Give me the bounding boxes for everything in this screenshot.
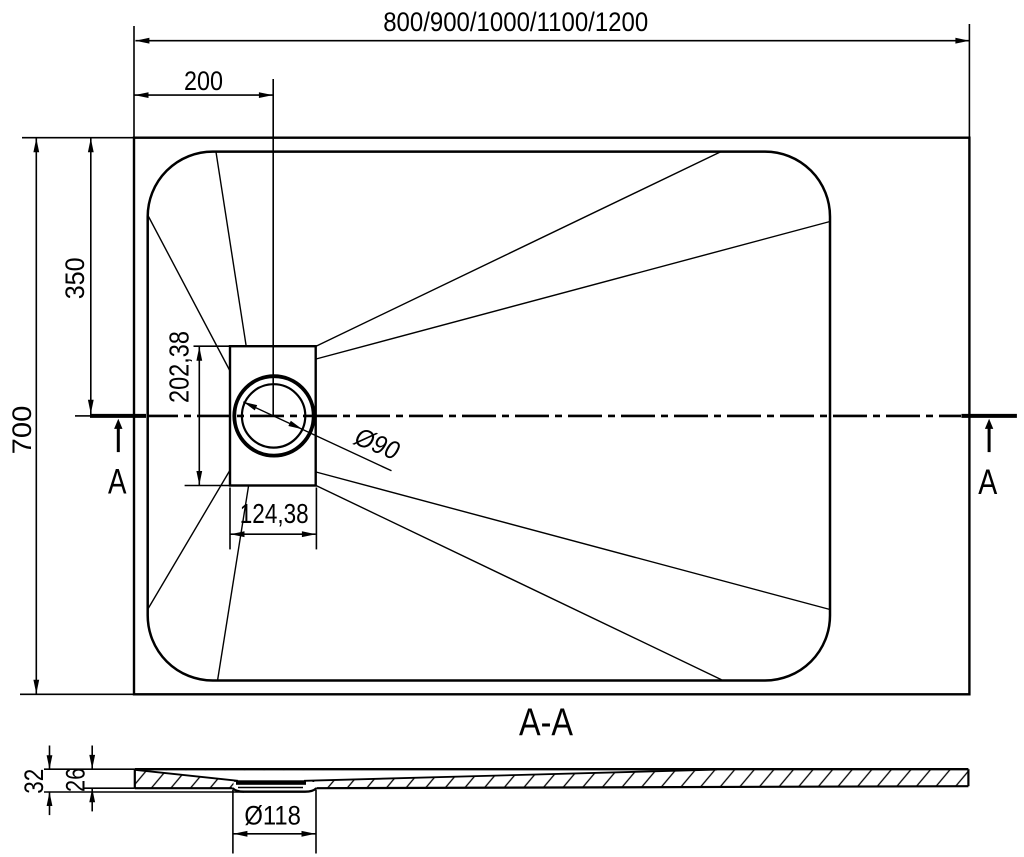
svg-text:Ø118: Ø118 xyxy=(244,801,301,831)
svg-text:200: 200 xyxy=(184,66,223,96)
svg-text:202,38: 202,38 xyxy=(164,331,195,403)
svg-text:350: 350 xyxy=(60,257,90,299)
svg-text:26: 26 xyxy=(60,768,90,792)
svg-text:32: 32 xyxy=(19,769,49,794)
svg-text:800/900/1000/1100/1200: 800/900/1000/1100/1200 xyxy=(383,7,648,37)
svg-text:Ø90: Ø90 xyxy=(350,421,404,466)
svg-text:124,38: 124,38 xyxy=(240,498,309,529)
svg-text:700: 700 xyxy=(7,406,37,455)
svg-text:A: A xyxy=(108,463,127,502)
svg-text:A: A xyxy=(978,463,998,502)
svg-text:A-A: A-A xyxy=(519,701,573,744)
